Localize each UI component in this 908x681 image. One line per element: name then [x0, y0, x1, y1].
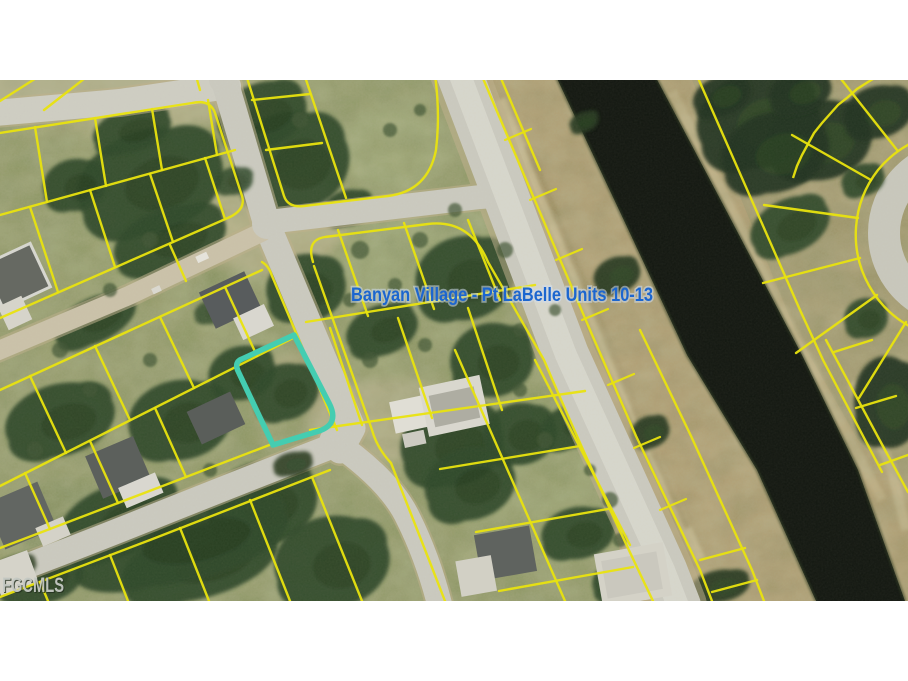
svg-text:Banyan Village - Pt LaBelle Un: Banyan Village - Pt LaBelle Units 10-13: [351, 285, 653, 306]
svg-text:FGCMLS: FGCMLS: [2, 574, 64, 597]
